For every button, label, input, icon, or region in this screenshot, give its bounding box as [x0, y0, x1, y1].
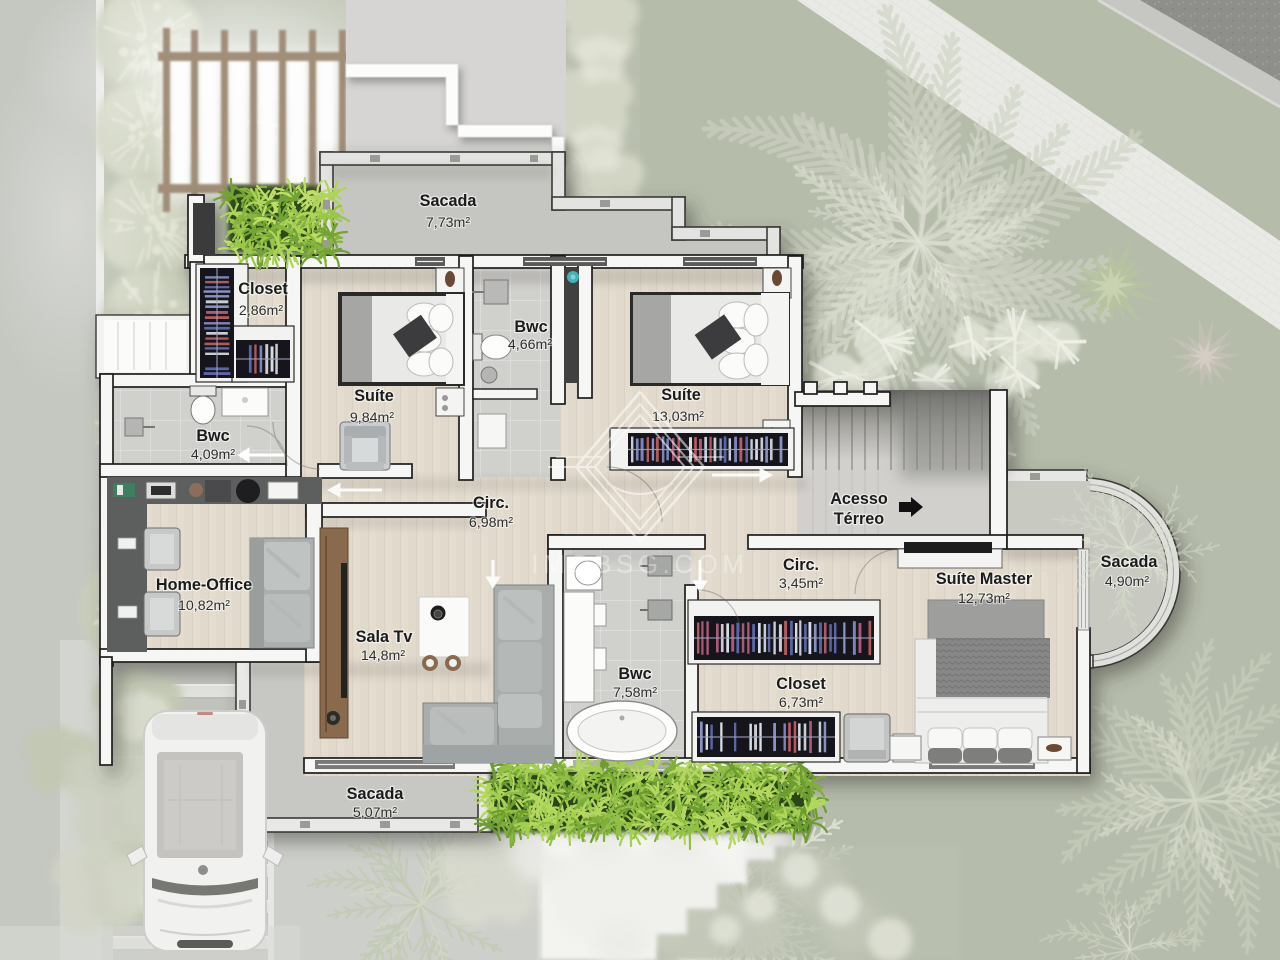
svg-text:5,07m²: 5,07m²: [353, 805, 397, 821]
svg-text:7,58m²: 7,58m²: [613, 685, 657, 701]
svg-text:6,73m²: 6,73m²: [779, 695, 823, 711]
svg-text:Suíte: Suíte: [661, 386, 701, 404]
svg-text:Bwc: Bwc: [618, 665, 651, 683]
svg-text:12,73m²: 12,73m²: [958, 591, 1010, 607]
svg-text:4,09m²: 4,09m²: [191, 447, 235, 463]
svg-text:4,90m²: 4,90m²: [1105, 574, 1149, 590]
svg-text:Sala Tv: Sala Tv: [356, 628, 413, 646]
svg-text:Suíte Master: Suíte Master: [936, 570, 1033, 588]
svg-text:10,82m²: 10,82m²: [178, 598, 230, 614]
svg-text:Sacada: Sacada: [347, 785, 405, 803]
svg-text:Closet: Closet: [776, 675, 826, 693]
svg-text:Circ.: Circ.: [783, 556, 819, 574]
svg-text:Suíte: Suíte: [354, 387, 394, 405]
svg-text:Sacada: Sacada: [1101, 553, 1159, 571]
svg-text:2,86m²: 2,86m²: [239, 303, 283, 319]
svg-text:Closet: Closet: [238, 280, 288, 298]
svg-text:4,66m²: 4,66m²: [508, 337, 552, 353]
svg-text:7,73m²: 7,73m²: [426, 215, 470, 231]
svg-text:Acesso: Acesso: [830, 490, 888, 508]
svg-text:6,98m²: 6,98m²: [469, 515, 513, 531]
svg-text:Bwc: Bwc: [196, 427, 229, 445]
svg-text:Home-Office: Home-Office: [156, 576, 252, 594]
svg-text:Circ.: Circ.: [473, 494, 509, 512]
svg-text:Térreo: Térreo: [834, 510, 884, 528]
svg-text:Sacada: Sacada: [420, 192, 478, 210]
svg-text:14,8m²: 14,8m²: [361, 648, 405, 664]
svg-text:3,45m²: 3,45m²: [779, 576, 823, 592]
svg-text:IMOBSG.COM: IMOBSG.COM: [532, 549, 749, 579]
svg-text:Bwc: Bwc: [514, 318, 547, 336]
svg-text:9,84m²: 9,84m²: [350, 410, 394, 426]
